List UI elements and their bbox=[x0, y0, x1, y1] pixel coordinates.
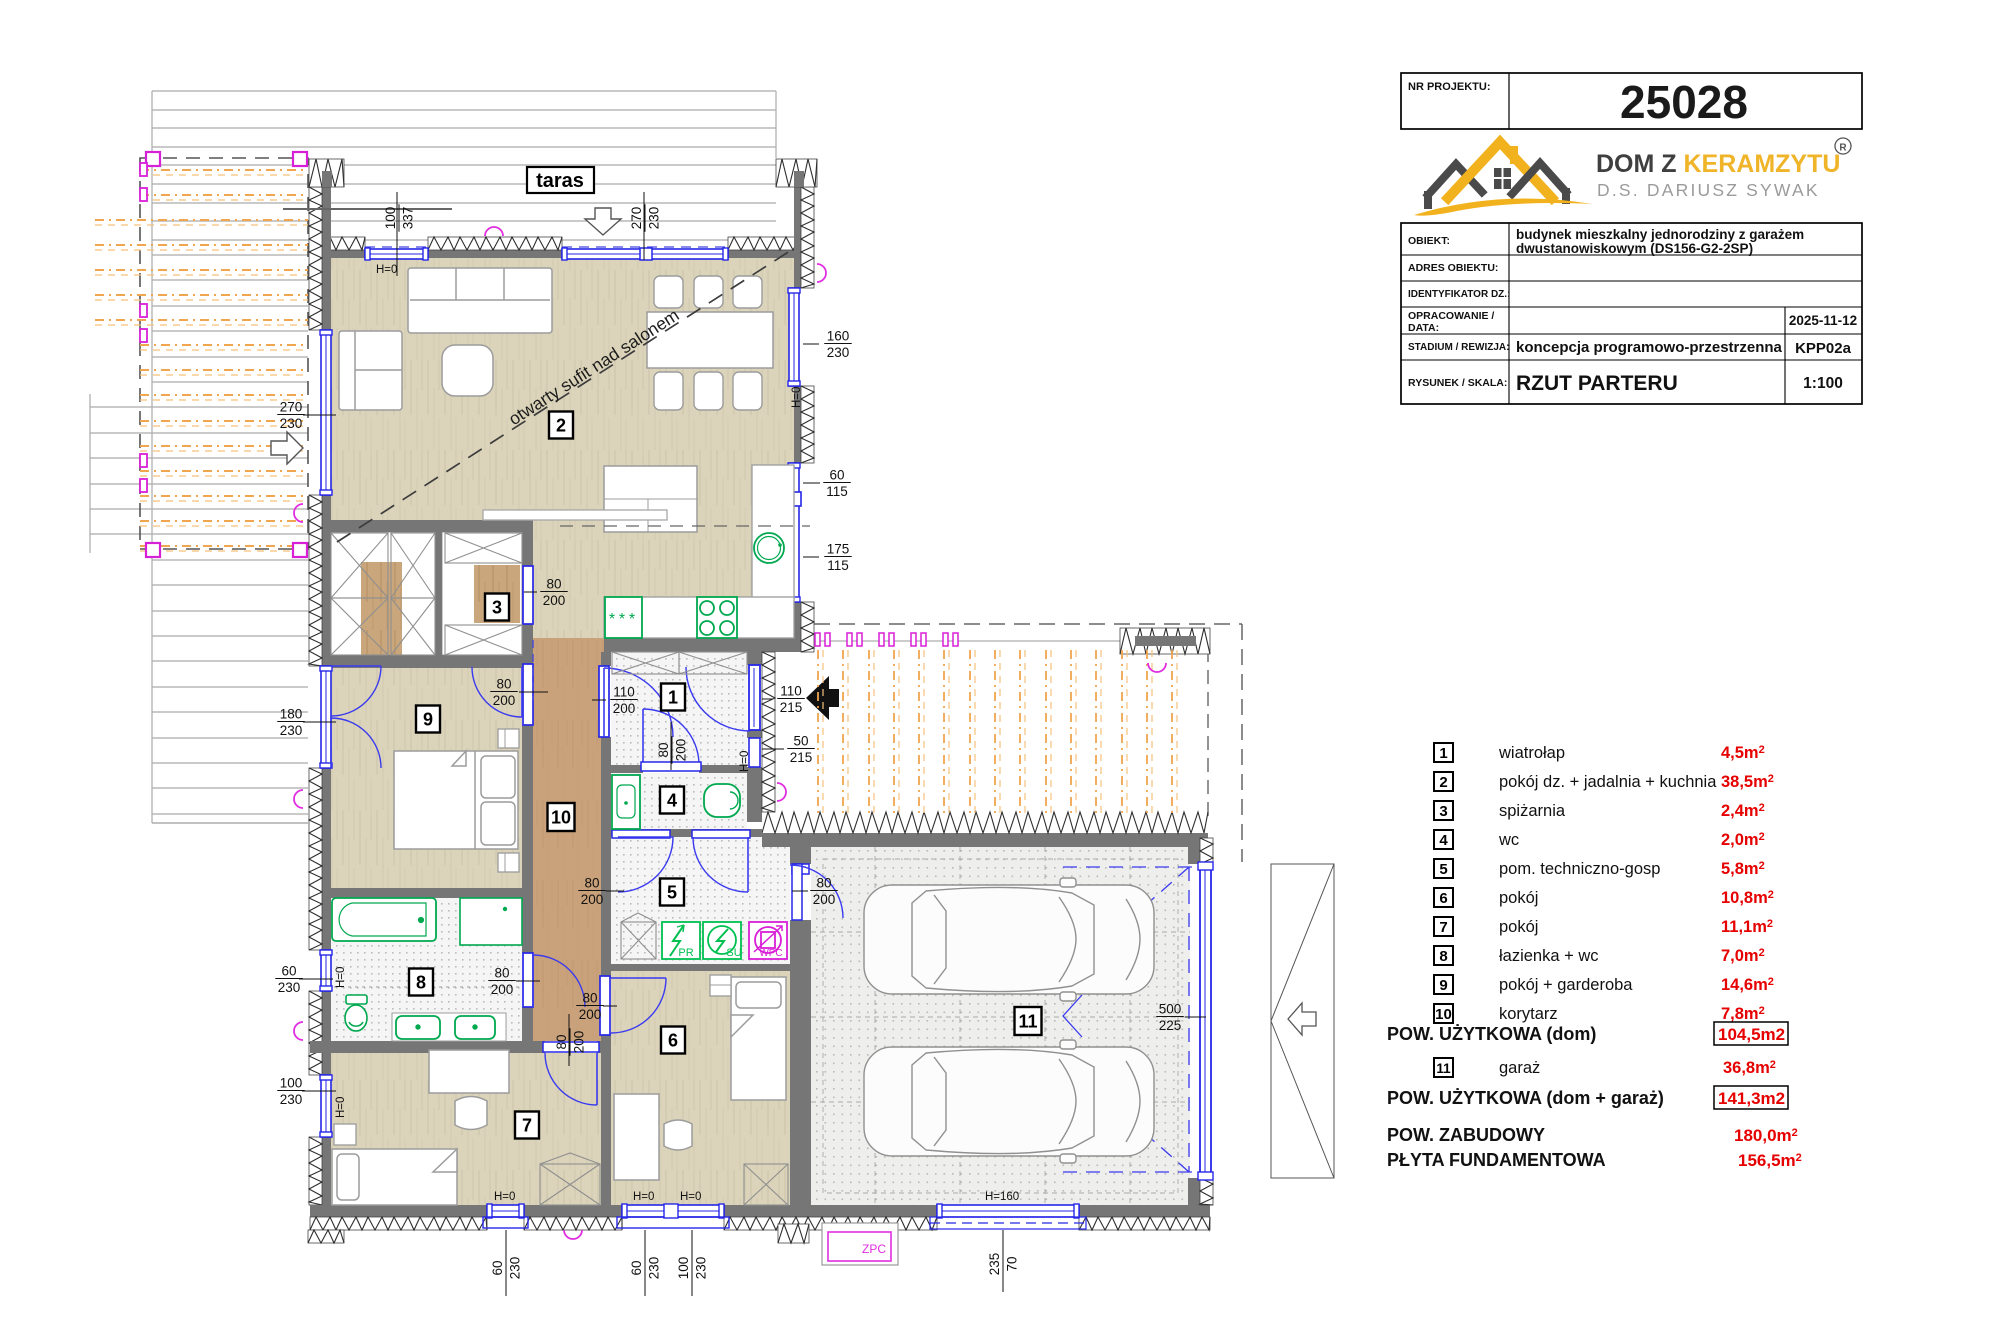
svg-text:4: 4 bbox=[667, 790, 677, 810]
svg-text:1: 1 bbox=[1439, 745, 1447, 762]
svg-text:11: 11 bbox=[1436, 1061, 1451, 1076]
svg-text:3: 3 bbox=[492, 597, 502, 617]
svg-text:H=0: H=0 bbox=[739, 751, 751, 772]
svg-text:6: 6 bbox=[668, 1030, 678, 1050]
svg-text:270: 270 bbox=[280, 400, 303, 415]
svg-text:200: 200 bbox=[543, 593, 566, 608]
svg-text:156,5m2: 156,5m2 bbox=[1738, 1151, 1802, 1170]
svg-text:2: 2 bbox=[1439, 774, 1447, 791]
svg-text:25028: 25028 bbox=[1620, 76, 1748, 128]
svg-text:1:100: 1:100 bbox=[1803, 375, 1843, 392]
svg-text:KPP02a: KPP02a bbox=[1795, 340, 1852, 357]
svg-text:38,5m2: 38,5m2 bbox=[1721, 773, 1774, 791]
svg-text:pokój: pokój bbox=[1499, 918, 1538, 936]
svg-text:14,6m2: 14,6m2 bbox=[1721, 976, 1774, 994]
svg-text:270: 270 bbox=[629, 207, 644, 230]
svg-text:500: 500 bbox=[1159, 1002, 1182, 1017]
svg-text:200: 200 bbox=[613, 701, 636, 716]
svg-text:korytarz: korytarz bbox=[1499, 1005, 1558, 1023]
svg-text:200: 200 bbox=[581, 892, 604, 907]
svg-text:235: 235 bbox=[987, 1253, 1002, 1276]
svg-text:80: 80 bbox=[494, 966, 509, 981]
svg-text:H=0: H=0 bbox=[376, 264, 397, 276]
svg-text:7,0m2: 7,0m2 bbox=[1721, 947, 1765, 965]
svg-text:7,8m2: 7,8m2 bbox=[1721, 1005, 1765, 1023]
svg-text:4,5m2: 4,5m2 bbox=[1721, 744, 1765, 762]
svg-text:60: 60 bbox=[281, 964, 296, 979]
svg-text:WPC: WPC bbox=[759, 948, 782, 959]
svg-text:36,8m2: 36,8m2 bbox=[1723, 1059, 1776, 1077]
svg-text:215: 215 bbox=[780, 700, 803, 715]
svg-text:5: 5 bbox=[1439, 861, 1447, 878]
svg-text:200: 200 bbox=[674, 739, 689, 762]
svg-text:*: * bbox=[619, 611, 625, 628]
svg-text:100: 100 bbox=[676, 1257, 691, 1280]
svg-text:STADIUM / REWIZJA:: STADIUM / REWIZJA: bbox=[1408, 342, 1509, 353]
svg-text:ZPC: ZPC bbox=[862, 1242, 886, 1256]
svg-text:1: 1 bbox=[668, 687, 678, 707]
svg-text:6: 6 bbox=[1439, 890, 1447, 907]
svg-text:POW. UŻYTKOWA (dom): POW. UŻYTKOWA (dom) bbox=[1387, 1024, 1596, 1044]
svg-text:RZUT PARTERU: RZUT PARTERU bbox=[1516, 372, 1678, 395]
svg-text:RYSUNEK / SKALA:: RYSUNEK / SKALA: bbox=[1408, 377, 1507, 389]
svg-text:337: 337 bbox=[401, 207, 416, 230]
svg-text:200: 200 bbox=[493, 693, 516, 708]
svg-text:wiatrołap: wiatrołap bbox=[1498, 744, 1565, 762]
svg-text:2025-11-12: 2025-11-12 bbox=[1789, 313, 1857, 328]
svg-text:230: 230 bbox=[278, 980, 301, 995]
svg-text:8: 8 bbox=[416, 972, 426, 992]
svg-text:70: 70 bbox=[1005, 1256, 1020, 1271]
svg-text:9: 9 bbox=[423, 709, 433, 729]
svg-text:2: 2 bbox=[556, 415, 566, 435]
svg-text:budynek mieszkalny jednorodzin: budynek mieszkalny jednorodziny z garaże… bbox=[1516, 227, 1804, 242]
svg-text:pom. techniczno-gosp: pom. techniczno-gosp bbox=[1499, 860, 1660, 878]
svg-text:9: 9 bbox=[1439, 977, 1447, 994]
svg-text:łazienka + wc: łazienka + wc bbox=[1499, 947, 1599, 965]
svg-text:H=0: H=0 bbox=[335, 967, 347, 988]
svg-text:180: 180 bbox=[280, 707, 303, 722]
svg-text:taras: taras bbox=[536, 170, 584, 192]
svg-text:pokój dz. + jadalnia + kuchnia: pokój dz. + jadalnia + kuchnia bbox=[1499, 773, 1717, 791]
svg-text:spiżarnia: spiżarnia bbox=[1499, 802, 1566, 820]
svg-text:200: 200 bbox=[491, 982, 514, 997]
svg-text:POW. UŻYTKOWA (dom + garaż): POW. UŻYTKOWA (dom + garaż) bbox=[1387, 1088, 1664, 1108]
svg-text:DATA:: DATA: bbox=[1408, 322, 1439, 334]
svg-text:pokój: pokój bbox=[1499, 889, 1538, 907]
svg-text:230: 230 bbox=[647, 207, 662, 230]
svg-text:H=0: H=0 bbox=[633, 1191, 654, 1203]
svg-text:5,8m2: 5,8m2 bbox=[1721, 860, 1765, 878]
svg-text:H=0: H=0 bbox=[791, 387, 803, 408]
svg-text:110: 110 bbox=[780, 684, 802, 699]
svg-text:ADRES OBIEKTU:: ADRES OBIEKTU: bbox=[1408, 262, 1498, 274]
svg-text:100: 100 bbox=[383, 207, 398, 230]
svg-text:60: 60 bbox=[490, 1260, 505, 1275]
svg-text:160: 160 bbox=[827, 329, 850, 344]
svg-text:180,0m2: 180,0m2 bbox=[1734, 1126, 1798, 1145]
svg-text:50: 50 bbox=[793, 734, 808, 749]
svg-text:230: 230 bbox=[827, 345, 850, 360]
svg-text:NR PROJEKTU:: NR PROJEKTU: bbox=[1408, 81, 1491, 93]
svg-text:225: 225 bbox=[1159, 1018, 1182, 1033]
svg-text:200: 200 bbox=[572, 1031, 587, 1054]
svg-text:60: 60 bbox=[629, 1260, 644, 1275]
svg-text:104,5m2: 104,5m2 bbox=[1718, 1025, 1785, 1044]
svg-text:80: 80 bbox=[582, 991, 597, 1006]
svg-text:7: 7 bbox=[522, 1115, 532, 1135]
svg-text:koncepcja programowo-przestrze: koncepcja programowo-przestrzenna bbox=[1516, 339, 1783, 356]
svg-text:IDENTYFIKATOR DZ.:: IDENTYFIKATOR DZ.: bbox=[1408, 289, 1510, 300]
svg-text:115: 115 bbox=[826, 484, 848, 499]
svg-text:PŁYTA FUNDAMENTOWA: PŁYTA FUNDAMENTOWA bbox=[1387, 1150, 1606, 1170]
svg-text:200: 200 bbox=[813, 892, 836, 907]
svg-text:80: 80 bbox=[554, 1034, 569, 1049]
svg-text:*: * bbox=[629, 611, 635, 628]
svg-text:80: 80 bbox=[584, 876, 599, 891]
svg-text:8: 8 bbox=[1439, 948, 1447, 965]
svg-text:PR: PR bbox=[678, 947, 693, 959]
svg-text:141,3m2: 141,3m2 bbox=[1718, 1089, 1785, 1108]
svg-text:R: R bbox=[1839, 143, 1847, 154]
svg-text:DOM Z KERAMZYTU: DOM Z KERAMZYTU bbox=[1596, 150, 1840, 178]
svg-text:80: 80 bbox=[496, 677, 511, 692]
svg-text:H=0: H=0 bbox=[335, 1097, 347, 1118]
svg-text:230: 230 bbox=[280, 1092, 303, 1107]
svg-text:garaż: garaż bbox=[1499, 1059, 1540, 1077]
svg-text:230: 230 bbox=[508, 1257, 523, 1280]
svg-text:H=0: H=0 bbox=[680, 1191, 701, 1203]
svg-text:10,8m2: 10,8m2 bbox=[1721, 889, 1774, 907]
svg-text:POW. ZABUDOWY: POW. ZABUDOWY bbox=[1387, 1125, 1545, 1145]
svg-text:110: 110 bbox=[613, 685, 635, 700]
svg-text:5: 5 bbox=[667, 882, 677, 902]
svg-text:OPRACOWANIE /: OPRACOWANIE / bbox=[1408, 310, 1494, 322]
svg-text:230: 230 bbox=[280, 723, 303, 738]
svg-text:100: 100 bbox=[280, 1076, 303, 1091]
svg-text:230: 230 bbox=[694, 1257, 709, 1280]
svg-text:215: 215 bbox=[790, 750, 813, 765]
svg-text:230: 230 bbox=[647, 1257, 662, 1280]
svg-text:60: 60 bbox=[829, 468, 844, 483]
svg-text:SU: SU bbox=[726, 947, 741, 959]
svg-text:*: * bbox=[609, 611, 615, 628]
svg-text:80: 80 bbox=[816, 876, 831, 891]
svg-text:2,4m2: 2,4m2 bbox=[1721, 802, 1765, 820]
svg-text:80: 80 bbox=[546, 577, 561, 592]
svg-text:200: 200 bbox=[579, 1007, 602, 1022]
svg-text:H=0: H=0 bbox=[494, 1191, 515, 1203]
svg-text:3: 3 bbox=[1439, 803, 1447, 820]
svg-text:OBIEKT:: OBIEKT: bbox=[1408, 235, 1450, 247]
svg-text:D.S. DARIUSZ SYWAK: D.S. DARIUSZ SYWAK bbox=[1597, 180, 1820, 200]
svg-text:4: 4 bbox=[1439, 832, 1448, 849]
svg-text:wc: wc bbox=[1498, 831, 1519, 849]
svg-text:115: 115 bbox=[827, 558, 849, 573]
svg-text:175: 175 bbox=[827, 542, 850, 557]
svg-text:11: 11 bbox=[1018, 1011, 1037, 1031]
svg-text:2,0m2: 2,0m2 bbox=[1721, 831, 1765, 849]
svg-text:10: 10 bbox=[1435, 1006, 1452, 1023]
svg-text:80: 80 bbox=[656, 742, 671, 757]
svg-text:10: 10 bbox=[551, 807, 571, 827]
svg-text:dwustanowiskowym (DS156-G2-2SP: dwustanowiskowym (DS156-G2-2SP) bbox=[1516, 241, 1753, 256]
svg-text:pokój + garderoba: pokój + garderoba bbox=[1499, 976, 1633, 994]
svg-text:230: 230 bbox=[280, 416, 303, 431]
svg-text:H=160: H=160 bbox=[985, 1191, 1019, 1203]
svg-text:11,1m2: 11,1m2 bbox=[1721, 918, 1773, 936]
svg-text:7: 7 bbox=[1439, 919, 1447, 936]
